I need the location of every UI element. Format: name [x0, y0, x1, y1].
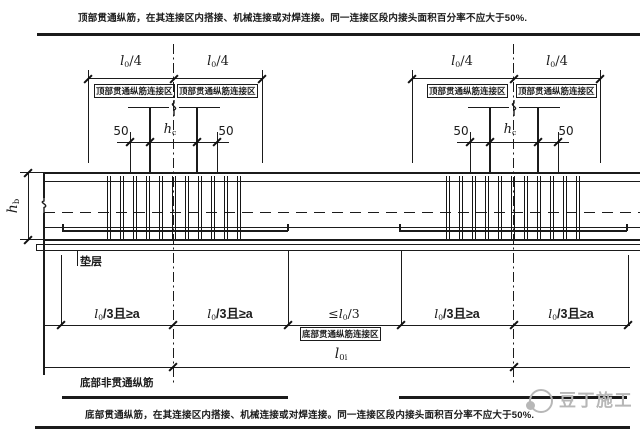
dim-label-hb: hb [6, 199, 21, 213]
top-rule-line [37, 33, 640, 36]
bedding-label: 垫层 [80, 257, 102, 268]
top-zone-box: 顶部贯通纵筋连接区 [516, 84, 597, 98]
dim-label-50: 50 [218, 125, 233, 137]
dim-label-quarter-span: l0/4 [207, 55, 229, 69]
extension-line [88, 70, 89, 163]
stirrup [224, 176, 228, 239]
stirrup [446, 176, 450, 239]
bar-hook [626, 224, 628, 231]
stirrup [146, 176, 150, 239]
top-note: 顶部贯通纵筋，在其连接区内搭接、机械连接或对焊连接。同一连接区段内接头面积百分率… [78, 14, 527, 24]
bedding-top-line [36, 244, 640, 245]
dim-sub: b [11, 199, 21, 204]
dim-label-50: 50 [453, 125, 468, 137]
dim-suffix: /3且≥a [443, 307, 480, 321]
dim-base: h [5, 204, 21, 213]
stirrup [524, 176, 528, 239]
extension-line [600, 70, 601, 163]
dim-label-l0i: l0i [335, 347, 348, 362]
bottom-rule-line [35, 426, 630, 429]
dim-suffix: /4 [216, 54, 229, 69]
extension-line [262, 70, 263, 163]
dim-label-third-span: l0/3且≥a [94, 308, 140, 321]
beam-top-edge [44, 172, 640, 174]
dim-suffix: /3 [348, 306, 360, 321]
dim-sub: c [512, 128, 516, 137]
stirrup [576, 176, 580, 239]
stirrup [159, 176, 163, 239]
beam-break-squiggle-icon [42, 198, 45, 213]
dim-sub: 0i [339, 352, 347, 362]
stirrup [511, 176, 515, 239]
rebar-connection-detail-drawing: 顶部贯通纵筋，在其连接区内搭接、机械连接或对焊连接。同一连接区段内接头面积百分率… [0, 0, 640, 435]
bedding-leader-line [77, 251, 78, 266]
dimension-line [44, 325, 630, 326]
dimension-line [117, 142, 229, 143]
stirrup [550, 176, 554, 239]
stirrup [537, 176, 541, 239]
dim-suffix: /3且≥a [216, 307, 253, 321]
column-cut-line [519, 107, 560, 108]
stirrup [120, 176, 124, 239]
dim-suffix: /3且≥a [557, 307, 594, 321]
beam-left-edge-extension [43, 213, 44, 375]
dim-prefix: ≤ [328, 306, 338, 321]
stirrup [237, 176, 241, 239]
extension-line [288, 250, 289, 325]
dim-label-quarter-span: l0/4 [120, 55, 142, 69]
bedding-left-end [36, 244, 37, 251]
dim-label-third-span: l0/3且≥a [434, 308, 480, 321]
dimension-line [457, 142, 569, 143]
dimension-line [28, 172, 29, 240]
bedding-bottom-line [36, 250, 640, 251]
extension-line [20, 239, 44, 240]
dim-label-third-span: l0/3且≥a [548, 308, 594, 321]
stirrup [172, 176, 176, 239]
stirrup [563, 176, 567, 239]
bottom-zone-box: 底部贯通纵筋连接区 [300, 327, 381, 341]
watermark-logo-dot-icon [526, 401, 535, 410]
extension-line [61, 255, 62, 325]
break-marks-layer [0, 0, 640, 435]
dim-tick [623, 320, 632, 329]
nonthrough-bar-extent [62, 396, 288, 399]
beam-left-edge [43, 172, 44, 198]
dim-label-quarter-span: l0/4 [546, 55, 568, 69]
extension-line [401, 250, 402, 325]
stirrup [133, 176, 137, 239]
extension-line [628, 255, 629, 325]
stirrup [498, 176, 502, 239]
dim-label-hc: hc [164, 123, 177, 137]
stirrup [485, 176, 489, 239]
bottom-note: 底部贯通纵筋，在其连接区内搭接、机械连接或对焊连接。同一连接区段内接头面积百分率… [85, 411, 534, 421]
dimension-line [412, 78, 600, 79]
top-zone-box: 顶部贯通纵筋连接区 [177, 84, 258, 98]
top-zone-box: 顶部贯通纵筋连接区 [427, 84, 508, 98]
extension-line [20, 172, 44, 173]
top-zone-box: 顶部贯通纵筋连接区 [94, 84, 175, 98]
bottom-nonthrough-label: 底部非贯通纵筋 [80, 378, 154, 389]
dimension-line [44, 367, 630, 368]
dim-label-50: 50 [113, 125, 128, 137]
dim-label-hc: hc [504, 123, 517, 137]
bar-hook [399, 224, 401, 231]
bar-hook [62, 224, 64, 231]
dim-suffix: /4 [129, 54, 142, 69]
extension-line [412, 70, 413, 163]
dim-sub: c [172, 128, 176, 137]
dim-label-max-third-span: ≤l0/3 [328, 308, 359, 321]
dim-suffix: /3且≥a [103, 307, 140, 321]
dim-suffix: /4 [555, 54, 568, 69]
stirrup [107, 176, 111, 239]
column-cut-line [179, 107, 220, 108]
dim-label-quarter-span: l0/4 [451, 55, 473, 69]
bar-hook [287, 224, 289, 231]
stirrup [198, 176, 202, 239]
dim-suffix: /4 [460, 54, 473, 69]
stirrup [185, 176, 189, 239]
dim-label-third-span: l0/3且≥a [207, 308, 253, 321]
dim-label-50: 50 [558, 125, 573, 137]
stirrup [459, 176, 463, 239]
stirrup [472, 176, 476, 239]
stirrup [211, 176, 215, 239]
watermark-text: 豆丁施工 [559, 392, 633, 409]
